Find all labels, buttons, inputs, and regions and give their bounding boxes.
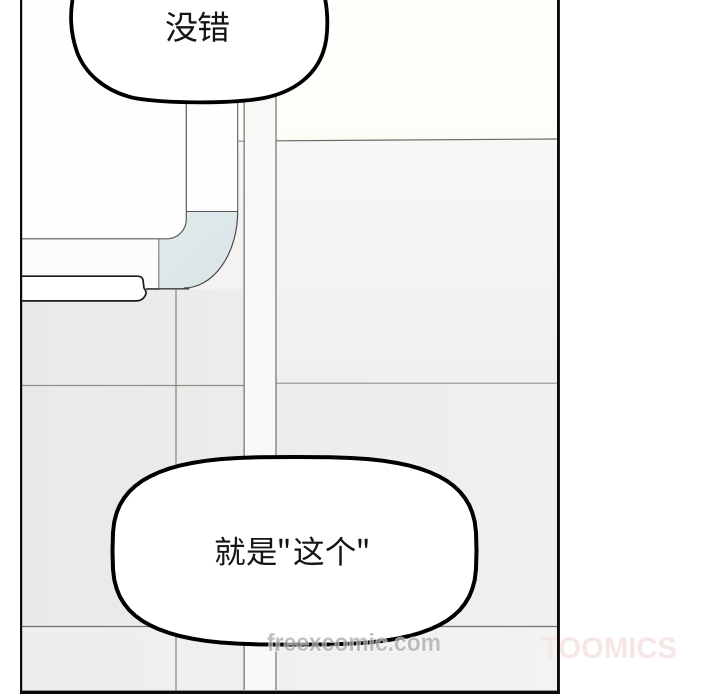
svg-text:TOOMICS: TOOMICS: [541, 632, 677, 665]
svg-text:freexcomic.com: freexcomic.com: [267, 629, 441, 657]
